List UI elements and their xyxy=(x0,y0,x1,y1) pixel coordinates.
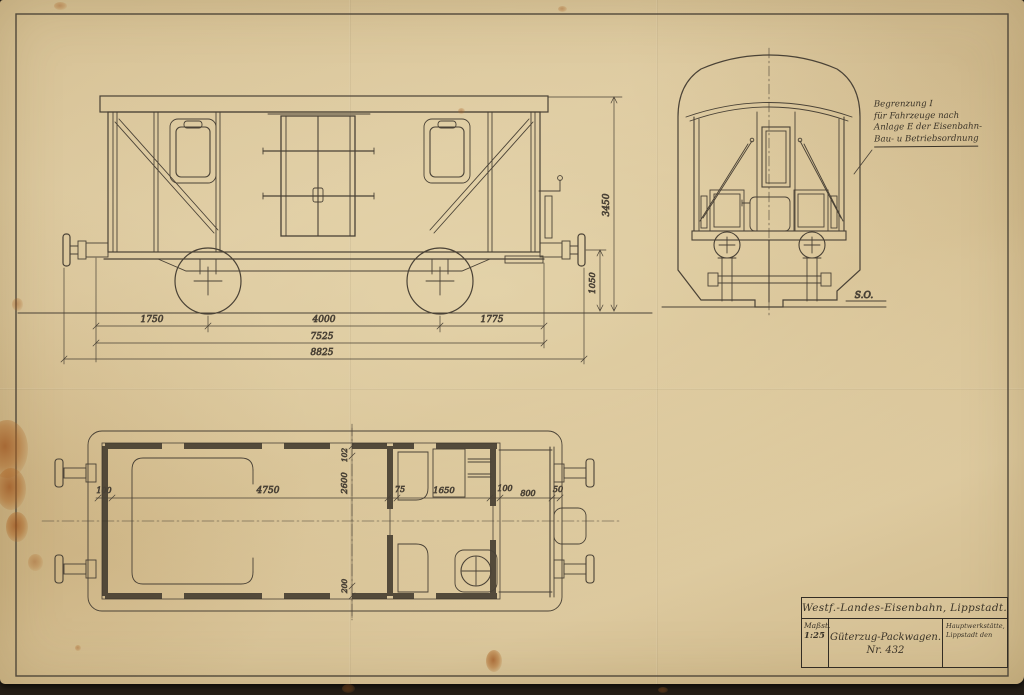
roof xyxy=(100,96,548,112)
dim-partition: 75 xyxy=(395,485,405,494)
workshop-line2: Lippstadt den xyxy=(946,631,1004,640)
dim-wheelbase: 4000 xyxy=(312,315,336,325)
dim-service-compartment: 1650 xyxy=(433,486,455,496)
dim-right-overhang: 1775 xyxy=(481,315,504,325)
side-window-left xyxy=(170,119,216,183)
title-block-scale-cell: Maßst. 1:25 xyxy=(802,619,829,668)
dim-wall-left: 100 xyxy=(96,486,111,495)
axle-flange xyxy=(708,273,718,286)
wheel-right xyxy=(407,248,473,314)
dim-interior-width: 2600 xyxy=(340,472,350,495)
plan-buffer-right-top xyxy=(554,459,594,487)
end-elevation-view: S.O. xyxy=(662,48,886,318)
side-window-right xyxy=(424,119,470,183)
buffer-right xyxy=(540,234,585,266)
scale-value: 1:25 xyxy=(804,631,826,641)
sheet-border xyxy=(16,14,1008,676)
wagon-body xyxy=(108,112,540,252)
scale-label: Maßst. xyxy=(804,621,826,631)
stove-pedestal xyxy=(750,197,790,231)
axle-flange xyxy=(821,273,831,286)
note-leader-line xyxy=(854,150,872,174)
side-elevation-view xyxy=(18,96,652,314)
buffer-left xyxy=(63,234,108,266)
drawing-number: Nr. 432 xyxy=(867,644,905,657)
dim-buffer-height: 1050 xyxy=(588,272,598,294)
dim-left-overhang: 1750 xyxy=(141,315,164,325)
note-line4: Bau- u Betriebsordnung xyxy=(874,133,979,147)
sliding-door xyxy=(263,114,374,236)
dim-buffer-length: 8825 xyxy=(311,348,334,358)
plan-buffer-left-top xyxy=(55,459,96,487)
dim-platform: 800 xyxy=(520,489,535,498)
dim-sill: 200 xyxy=(340,579,349,595)
dim-body-height: 3450 xyxy=(602,193,612,216)
end-box-right xyxy=(794,190,828,231)
loading-gauge-note: Begrenzung I für Fahrzeuge nach Anlage E… xyxy=(874,98,1000,147)
note-line3: Anlage E der Eisenbahn- xyxy=(874,121,1000,134)
title-block-workshop-cell: Hauptwerkstätte, Lippstadt den xyxy=(943,619,1007,668)
dim-interior-length: 4750 xyxy=(256,486,280,496)
dim-wall-mid: 100 xyxy=(497,484,512,493)
plan-buffer-right-bottom xyxy=(554,555,594,583)
drawing-title: Güterzug-Packwagen. xyxy=(830,631,941,644)
title-block: Westf.-Landes-Eisenbahn, Lippstadt. Maßs… xyxy=(801,597,1008,668)
workshop-line1: Hauptwerkstätte, xyxy=(946,622,1004,631)
title-block-title-cell: Güterzug-Packwagen. Nr. 432 xyxy=(829,619,943,668)
handbrake-crank xyxy=(539,176,562,238)
dim-end-post: 50 xyxy=(553,485,563,494)
dim-plank: 102 xyxy=(340,448,349,463)
bench-lower xyxy=(398,544,428,592)
plan-buffer-left-bottom xyxy=(55,555,96,583)
plan-view xyxy=(42,424,622,620)
coupling-hook xyxy=(554,508,586,544)
side-dimensions: 1750 4000 1775 7525 8825 3450 1050 xyxy=(61,97,622,364)
wheel-left xyxy=(175,248,241,314)
so-marker: S.O. xyxy=(855,291,874,301)
title-block-company: Westf.-Landes-Eisenbahn, Lippstadt. xyxy=(802,598,1007,619)
dim-frame-length: 7525 xyxy=(311,332,334,342)
technical-drawing: 1750 4000 1775 7525 8825 3450 1050 xyxy=(0,0,1024,695)
